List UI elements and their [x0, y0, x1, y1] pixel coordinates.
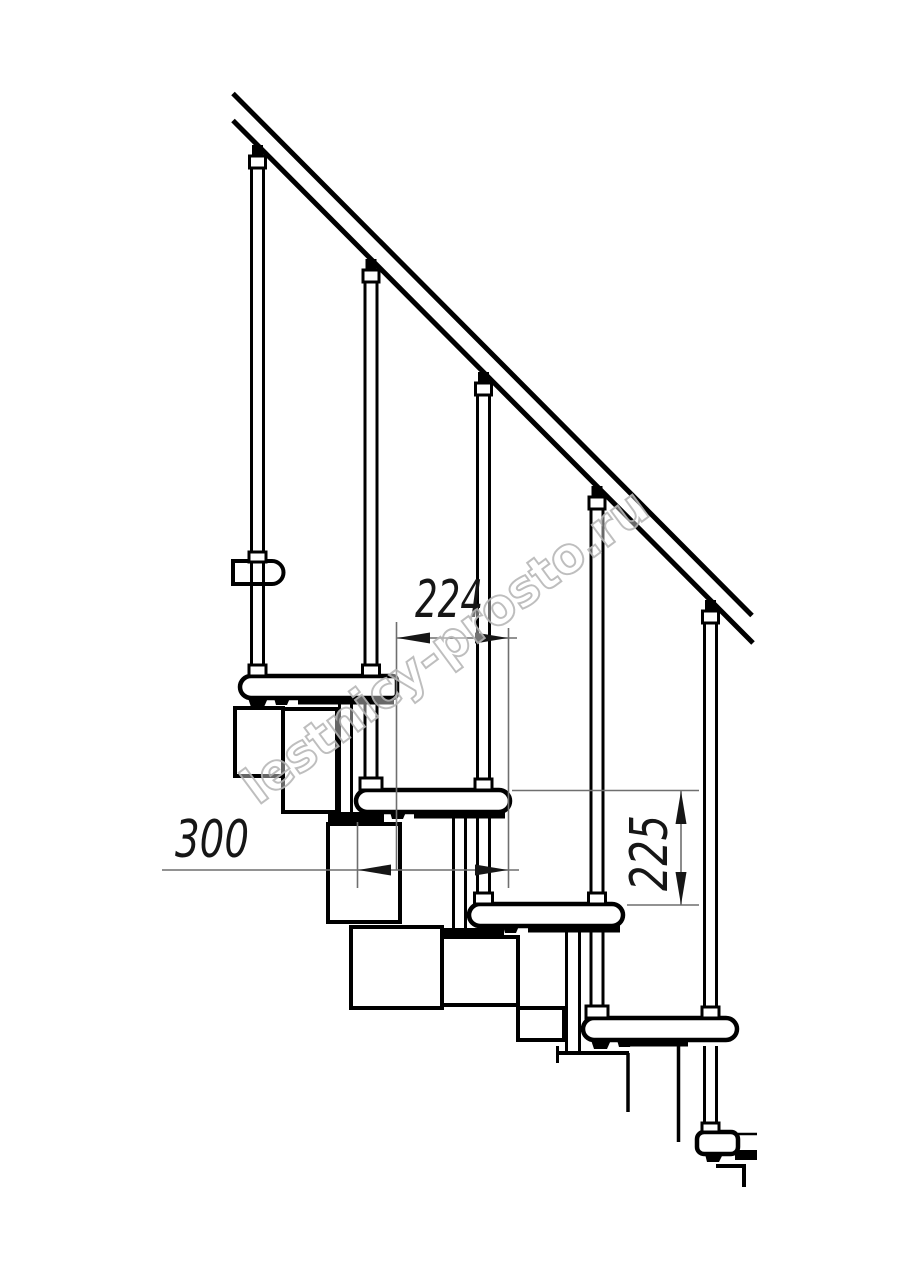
handrail — [233, 94, 753, 644]
module-strut — [454, 812, 466, 930]
baluster-1 — [249, 145, 266, 676]
module-box — [518, 1008, 564, 1040]
baluster-5 — [702, 600, 719, 1132]
watermark-text: lestnicy-prosto.ru — [231, 477, 659, 815]
dimension-225: 225 — [512, 791, 699, 906]
tread-bottom — [697, 1132, 738, 1154]
tread-3 — [469, 904, 623, 926]
tread-2 — [356, 790, 510, 812]
technical-drawing-staircase: 224 300 225 lestnicy-prosto.ru — [0, 0, 914, 1280]
tread-end-view — [233, 561, 284, 584]
module-box — [351, 927, 442, 1008]
tread-4 — [583, 1018, 737, 1040]
module-strut — [567, 926, 580, 1053]
module-cut-lines — [556, 1046, 757, 1187]
module-box — [442, 937, 518, 1005]
watermark: lestnicy-prosto.ru — [231, 477, 659, 815]
dimension-225-label: 225 — [620, 815, 680, 891]
dimension-300-label: 300 — [175, 810, 249, 870]
